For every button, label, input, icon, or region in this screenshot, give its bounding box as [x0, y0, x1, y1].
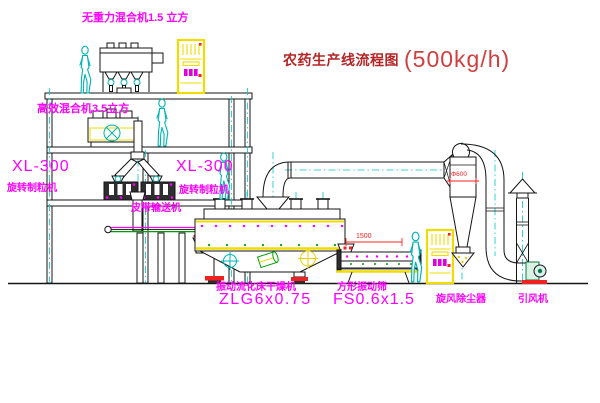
- title-text: 农药生产线流程图: [283, 50, 399, 70]
- control-cabinet-top: [178, 40, 204, 93]
- label-belt-conveyor: 皮带输送机: [131, 204, 181, 214]
- label-screen-model: FS0.6x1.5: [333, 292, 415, 308]
- valve-icon: [108, 80, 114, 86]
- label-dryer-model: ZLG6x0.75: [219, 292, 312, 308]
- label-cyclone: 旋风除尘器: [436, 295, 486, 305]
- control-cabinet-ground: [427, 230, 453, 283]
- dimension-screen-length: 1500: [356, 233, 372, 240]
- granulator-right: [141, 182, 175, 200]
- label-granulator-left-name: 旋转制粒机: [7, 184, 57, 194]
- pulley-icon: [105, 226, 111, 232]
- induced-draft-fan: [522, 262, 547, 284]
- valve-icon: [134, 80, 140, 86]
- label-fan: 引风机: [518, 295, 548, 305]
- label-high-efficiency-mixer: 高效混合机3.5立方: [37, 104, 129, 115]
- gravity-mixer: [100, 43, 163, 93]
- label-gravity-mixer: 无重力混合机1.5 立方: [82, 13, 188, 24]
- person-figure-2: [157, 99, 168, 146]
- valve-icon: [121, 80, 127, 86]
- label-granulator-right-model: XL-300: [176, 159, 234, 175]
- person-figure-1: [80, 46, 91, 93]
- label-granulator-right-name: 旋转制粒机: [179, 186, 229, 196]
- belt-conveyor: [105, 226, 206, 283]
- main-duct: [257, 162, 444, 209]
- valve-icon: [115, 176, 121, 182]
- label-granulator-left-model: XL-300: [12, 159, 70, 175]
- drawing-title: 农药生产线流程图 (500kg/h): [283, 46, 510, 73]
- dimension-cyclone-diameter: Φ600: [451, 172, 467, 179]
- drawing-area: 农药生产线流程图 (500kg/h) 无重力混合机1.5 立方 高效混合机3.5…: [0, 0, 600, 403]
- fluid-bed-dryer: [195, 199, 345, 284]
- title-capacity: (500kg/h): [404, 46, 510, 73]
- valve-icon: [153, 176, 159, 182]
